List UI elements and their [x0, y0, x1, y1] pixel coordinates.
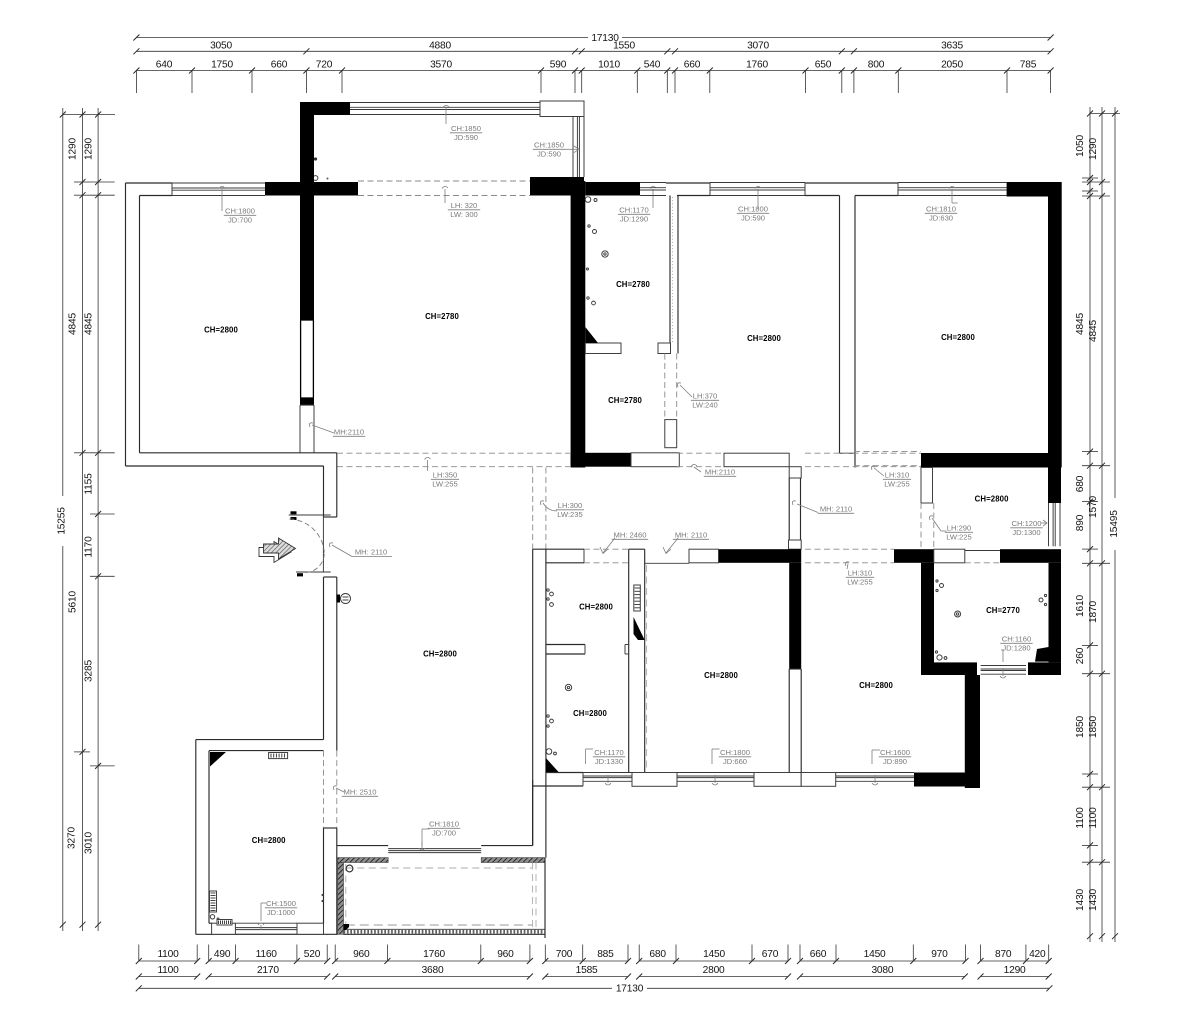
svg-text:CH:1170: CH:1170	[594, 748, 623, 757]
svg-text:CH:1170: CH:1170	[619, 206, 648, 215]
svg-text:1430: 1430	[1075, 889, 1086, 911]
svg-text:CH=2800: CH=2800	[747, 334, 781, 343]
svg-text:1570: 1570	[1088, 496, 1099, 518]
svg-text:720: 720	[316, 60, 333, 71]
svg-text:CH=2780: CH=2780	[616, 280, 650, 289]
svg-text:MH:2110: MH:2110	[705, 468, 735, 477]
svg-text:CH=2780: CH=2780	[425, 312, 459, 321]
svg-text:CH:1200: CH:1200	[1012, 519, 1042, 528]
svg-text:CH:1850: CH:1850	[451, 124, 481, 133]
svg-text:4845: 4845	[1075, 313, 1086, 335]
svg-text:JD:630: JD:630	[929, 214, 953, 223]
svg-text:MH: 2110: MH: 2110	[355, 548, 387, 557]
svg-text:420: 420	[1029, 949, 1046, 960]
svg-text:3080: 3080	[871, 965, 893, 976]
svg-text:1450: 1450	[864, 949, 886, 960]
svg-text:CH=2800: CH=2800	[204, 325, 238, 334]
svg-text:3635: 3635	[941, 40, 963, 51]
svg-text:3570: 3570	[430, 60, 452, 71]
svg-text:MH:2110: MH:2110	[334, 428, 364, 437]
svg-text:1290: 1290	[1004, 965, 1026, 976]
svg-text:CH:1500: CH:1500	[266, 899, 296, 908]
svg-text:540: 540	[644, 60, 661, 71]
svg-text:JD:890: JD:890	[883, 757, 907, 766]
svg-text:JD:660: JD:660	[723, 757, 747, 766]
svg-text:1760: 1760	[746, 60, 768, 71]
svg-text:LW:235: LW:235	[557, 510, 582, 519]
svg-text:LW: 300: LW: 300	[450, 210, 478, 219]
svg-text:CH:1850: CH:1850	[534, 141, 564, 150]
svg-text:1100: 1100	[1088, 807, 1099, 829]
svg-text:660: 660	[810, 949, 827, 960]
svg-text:LH:310: LH:310	[885, 471, 910, 480]
svg-text:1610: 1610	[1075, 595, 1086, 617]
svg-text:1290: 1290	[84, 138, 95, 160]
svg-text:1450: 1450	[703, 949, 725, 960]
svg-text:800: 800	[868, 60, 885, 71]
svg-text:CH=2800: CH=2800	[423, 649, 457, 658]
svg-text:970: 970	[931, 949, 948, 960]
svg-text:640: 640	[156, 60, 173, 71]
svg-text:260: 260	[1075, 647, 1086, 664]
svg-text:870: 870	[995, 949, 1012, 960]
svg-text:1550: 1550	[613, 40, 635, 51]
svg-text:JD:700: JD:700	[432, 829, 456, 838]
svg-text:490: 490	[214, 949, 231, 960]
svg-text:JD:1280: JD:1280	[1002, 644, 1030, 653]
svg-text:5610: 5610	[68, 591, 79, 613]
svg-text:LW:255: LW:255	[884, 480, 909, 489]
svg-text:LH:350: LH:350	[433, 471, 458, 480]
svg-text:JD:590: JD:590	[741, 214, 765, 223]
svg-text:JD:700: JD:700	[228, 216, 252, 225]
svg-text:4845: 4845	[68, 313, 79, 335]
svg-text:1870: 1870	[1088, 601, 1099, 623]
svg-text:4845: 4845	[84, 313, 95, 335]
svg-text:CH:1810: CH:1810	[429, 820, 459, 829]
svg-text:MH: 2110: MH: 2110	[820, 505, 852, 514]
svg-text:1170: 1170	[84, 536, 95, 558]
svg-text:1585: 1585	[576, 965, 598, 976]
svg-text:LW:240: LW:240	[692, 401, 717, 410]
svg-text:CH:1600: CH:1600	[880, 748, 910, 757]
svg-text:3680: 3680	[422, 965, 444, 976]
svg-text:CH:1800: CH:1800	[720, 748, 750, 757]
svg-text:LW:255: LW:255	[432, 480, 457, 489]
svg-text:CH=2800: CH=2800	[252, 836, 286, 845]
svg-text:CH:1800: CH:1800	[225, 207, 255, 216]
svg-text:1290: 1290	[1088, 138, 1099, 160]
svg-text:1155: 1155	[84, 473, 95, 495]
svg-text:3285: 3285	[84, 660, 95, 682]
svg-text:1850: 1850	[1075, 716, 1086, 738]
svg-text:670: 670	[762, 949, 779, 960]
svg-text:4845: 4845	[1088, 320, 1099, 342]
svg-text:CH=2800: CH=2800	[975, 494, 1009, 503]
svg-text:CH=2800: CH=2800	[859, 681, 893, 690]
svg-text:CH=2800: CH=2800	[573, 709, 607, 718]
svg-text:680: 680	[649, 949, 666, 960]
svg-text:3050: 3050	[210, 40, 232, 51]
svg-text:1430: 1430	[1088, 889, 1099, 911]
svg-text:885: 885	[597, 949, 614, 960]
svg-text:CH=2780: CH=2780	[608, 396, 642, 405]
svg-text:CH=2800: CH=2800	[579, 602, 613, 611]
svg-text:17130: 17130	[616, 984, 644, 995]
svg-text:CH:1810: CH:1810	[926, 205, 956, 214]
svg-text:LH:370: LH:370	[693, 392, 718, 401]
svg-text:890: 890	[1075, 514, 1086, 531]
svg-text:CH:1160: CH:1160	[1002, 635, 1031, 644]
svg-text:3070: 3070	[747, 40, 769, 51]
svg-text:590: 590	[550, 60, 567, 71]
svg-text:LH:310: LH:310	[848, 569, 873, 578]
svg-text:2800: 2800	[703, 965, 725, 976]
svg-text:520: 520	[304, 949, 321, 960]
svg-text:LH:300: LH:300	[558, 501, 583, 510]
svg-text:MH: 2510: MH: 2510	[344, 788, 377, 797]
svg-text:650: 650	[815, 60, 832, 71]
svg-text:15495: 15495	[1109, 510, 1120, 538]
svg-text:1850: 1850	[1088, 716, 1099, 738]
svg-text:CH=2800: CH=2800	[704, 671, 738, 680]
svg-text:680: 680	[1075, 475, 1086, 492]
svg-text:960: 960	[353, 949, 370, 960]
svg-text:JD:1300: JD:1300	[1012, 528, 1040, 537]
svg-text:LW:225: LW:225	[946, 533, 971, 542]
svg-text:700: 700	[556, 949, 573, 960]
svg-text:JD:1330: JD:1330	[595, 757, 623, 766]
svg-text:660: 660	[684, 60, 701, 71]
svg-text:CH:1800: CH:1800	[738, 205, 768, 214]
svg-text:LH: 320: LH: 320	[451, 201, 478, 210]
svg-text:1290: 1290	[68, 138, 79, 160]
svg-text:1160: 1160	[256, 949, 278, 960]
svg-text:JD:1290: JD:1290	[620, 215, 648, 224]
svg-text:660: 660	[271, 60, 288, 71]
svg-text:1050: 1050	[1075, 135, 1086, 157]
svg-text:4880: 4880	[429, 40, 451, 51]
svg-text:JD:590: JD:590	[537, 150, 561, 159]
svg-text:JD:590: JD:590	[454, 133, 478, 142]
svg-text:3010: 3010	[84, 832, 95, 854]
svg-text:785: 785	[1020, 60, 1037, 71]
svg-text:1760: 1760	[423, 949, 445, 960]
svg-text:LW:255: LW:255	[847, 578, 872, 587]
svg-text:MH: 2460: MH: 2460	[614, 531, 647, 540]
svg-text:2170: 2170	[257, 965, 279, 976]
svg-text:LH:290: LH:290	[947, 524, 972, 533]
svg-text:1100: 1100	[157, 965, 179, 976]
svg-text:3270: 3270	[67, 827, 78, 849]
svg-text:CH=2800: CH=2800	[941, 333, 975, 342]
svg-text:1100: 1100	[1075, 807, 1086, 829]
svg-text:MH: 2110: MH: 2110	[675, 531, 707, 540]
svg-text:1100: 1100	[157, 949, 179, 960]
svg-text:960: 960	[497, 949, 514, 960]
svg-text:1750: 1750	[211, 60, 233, 71]
svg-text:15255: 15255	[57, 507, 68, 535]
svg-text:1010: 1010	[598, 60, 620, 71]
svg-text:2050: 2050	[941, 60, 963, 71]
svg-text:JD:1000: JD:1000	[267, 908, 295, 917]
svg-text:CH=2770: CH=2770	[986, 606, 1020, 615]
